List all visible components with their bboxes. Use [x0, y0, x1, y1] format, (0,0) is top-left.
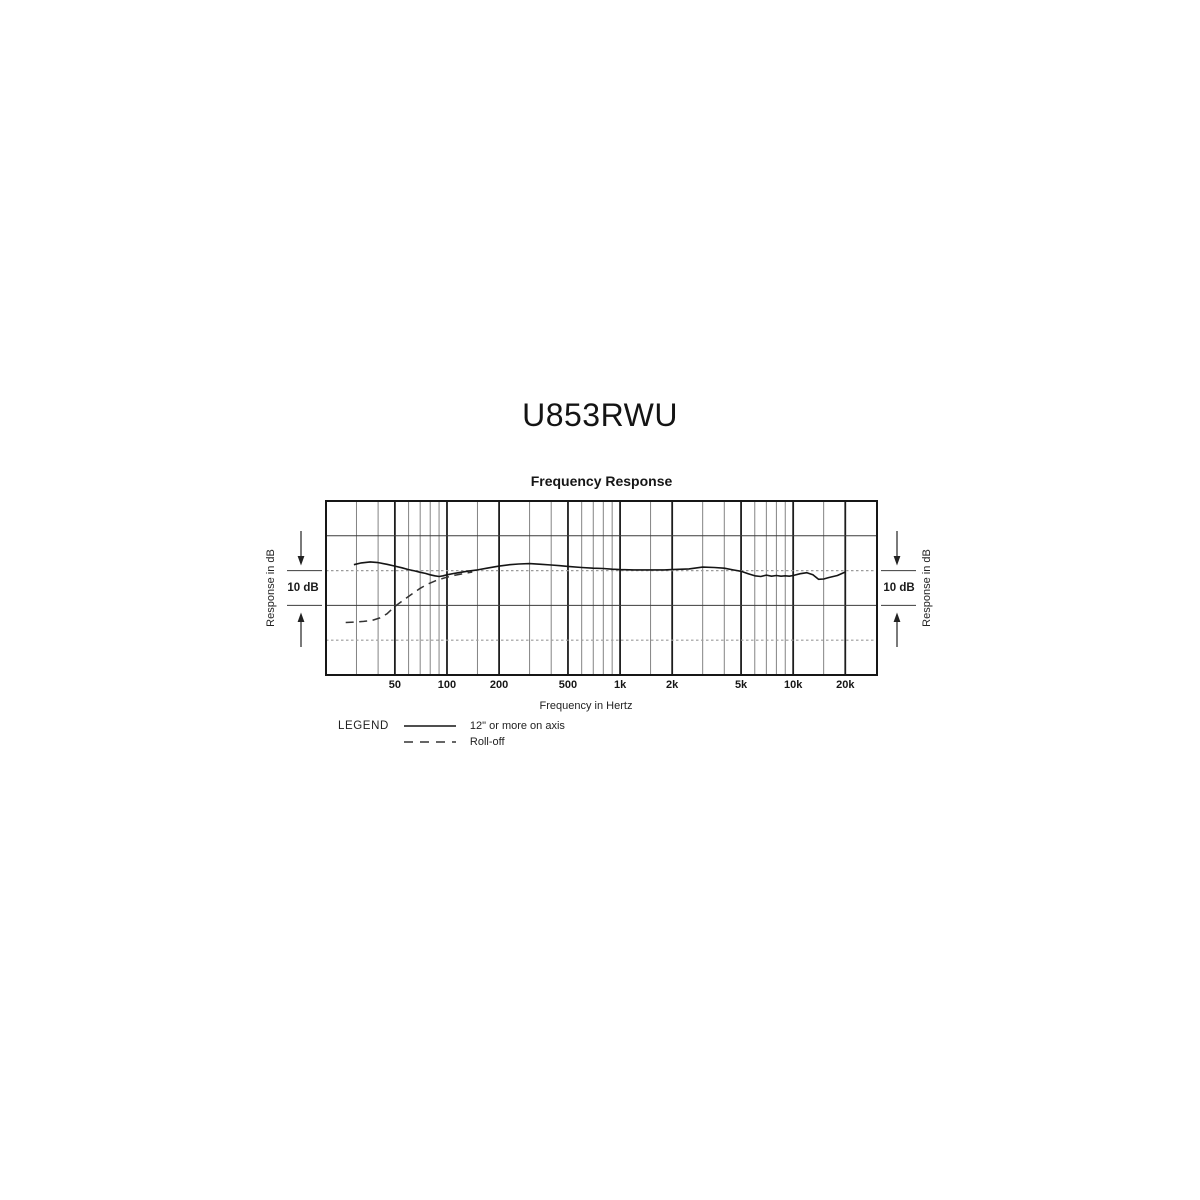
legend-title: LEGEND	[338, 718, 389, 734]
legend-label-on-axis: 12" or more on axis	[470, 720, 565, 732]
x-axis-label: Frequency in Hertz	[326, 700, 846, 712]
arrow-up-head	[298, 613, 305, 623]
legend-item-on-axis: 12" or more on axis	[403, 718, 565, 734]
x-tick-label: 500	[559, 679, 577, 691]
x-tick-label: 50	[389, 679, 401, 691]
legend-item-roll-off: Roll-off	[403, 734, 565, 750]
legend: LEGEND 12" or more on axis Roll-off	[338, 718, 565, 750]
y-axis-label-right: Response in dB	[921, 549, 933, 627]
arrow-down-head	[298, 556, 305, 566]
x-tick-label: 10k	[784, 679, 802, 691]
page: U853RWU Frequency Response Response in d…	[0, 0, 1200, 1200]
x-tick-label: 5k	[735, 679, 747, 691]
arrow-up-head	[894, 613, 901, 623]
solid-line-sample	[403, 723, 457, 729]
scale-label-left: 10 dB	[287, 582, 318, 594]
x-tick-label: 100	[438, 679, 456, 691]
x-tick-label: 2k	[666, 679, 678, 691]
frequency-response-chart	[0, 0, 1200, 1200]
scale-label-right: 10 dB	[883, 582, 914, 594]
dashed-line-sample	[403, 739, 457, 745]
arrow-down-head	[894, 556, 901, 566]
legend-label-roll-off: Roll-off	[470, 736, 505, 748]
x-tick-label: 200	[490, 679, 508, 691]
x-tick-label: 1k	[614, 679, 626, 691]
x-tick-label: 20k	[836, 679, 854, 691]
y-axis-label-left: Response in dB	[265, 549, 277, 627]
